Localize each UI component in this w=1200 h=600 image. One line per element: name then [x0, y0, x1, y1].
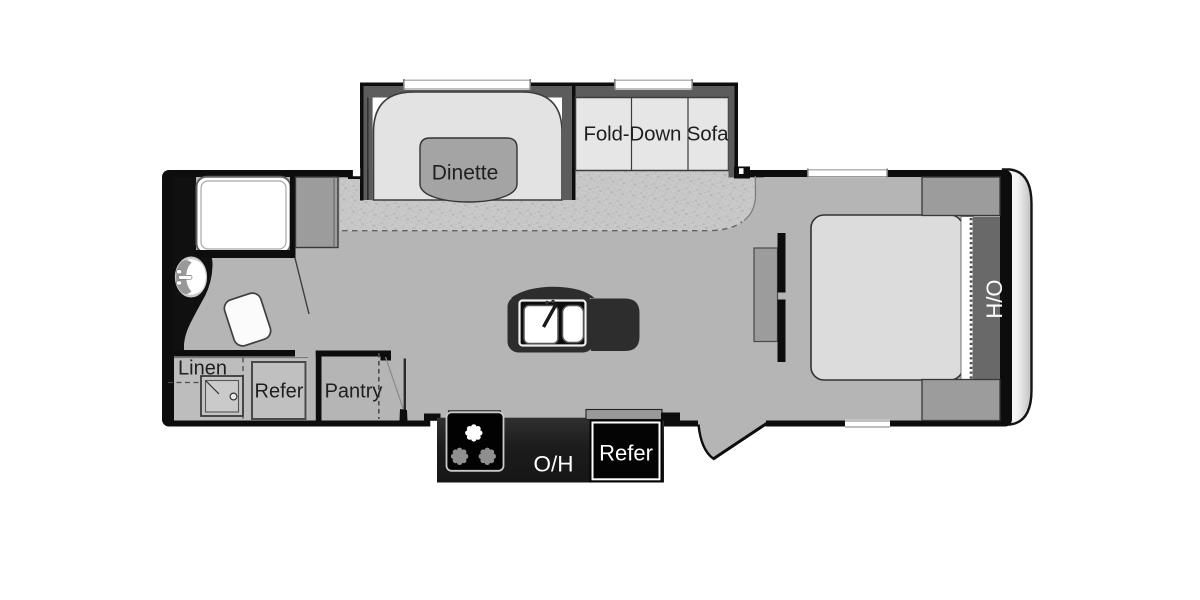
svg-text:Fold-Down Sofa: Fold-Down Sofa — [584, 123, 730, 146]
svg-text:Refer: Refer — [255, 381, 304, 403]
svg-text:H/O: H/O — [982, 279, 1007, 318]
svg-text:Dinette: Dinette — [432, 162, 499, 185]
svg-text:Refer: Refer — [599, 441, 653, 466]
svg-text:Pantry: Pantry — [325, 381, 383, 403]
svg-text:O/H: O/H — [533, 452, 573, 477]
